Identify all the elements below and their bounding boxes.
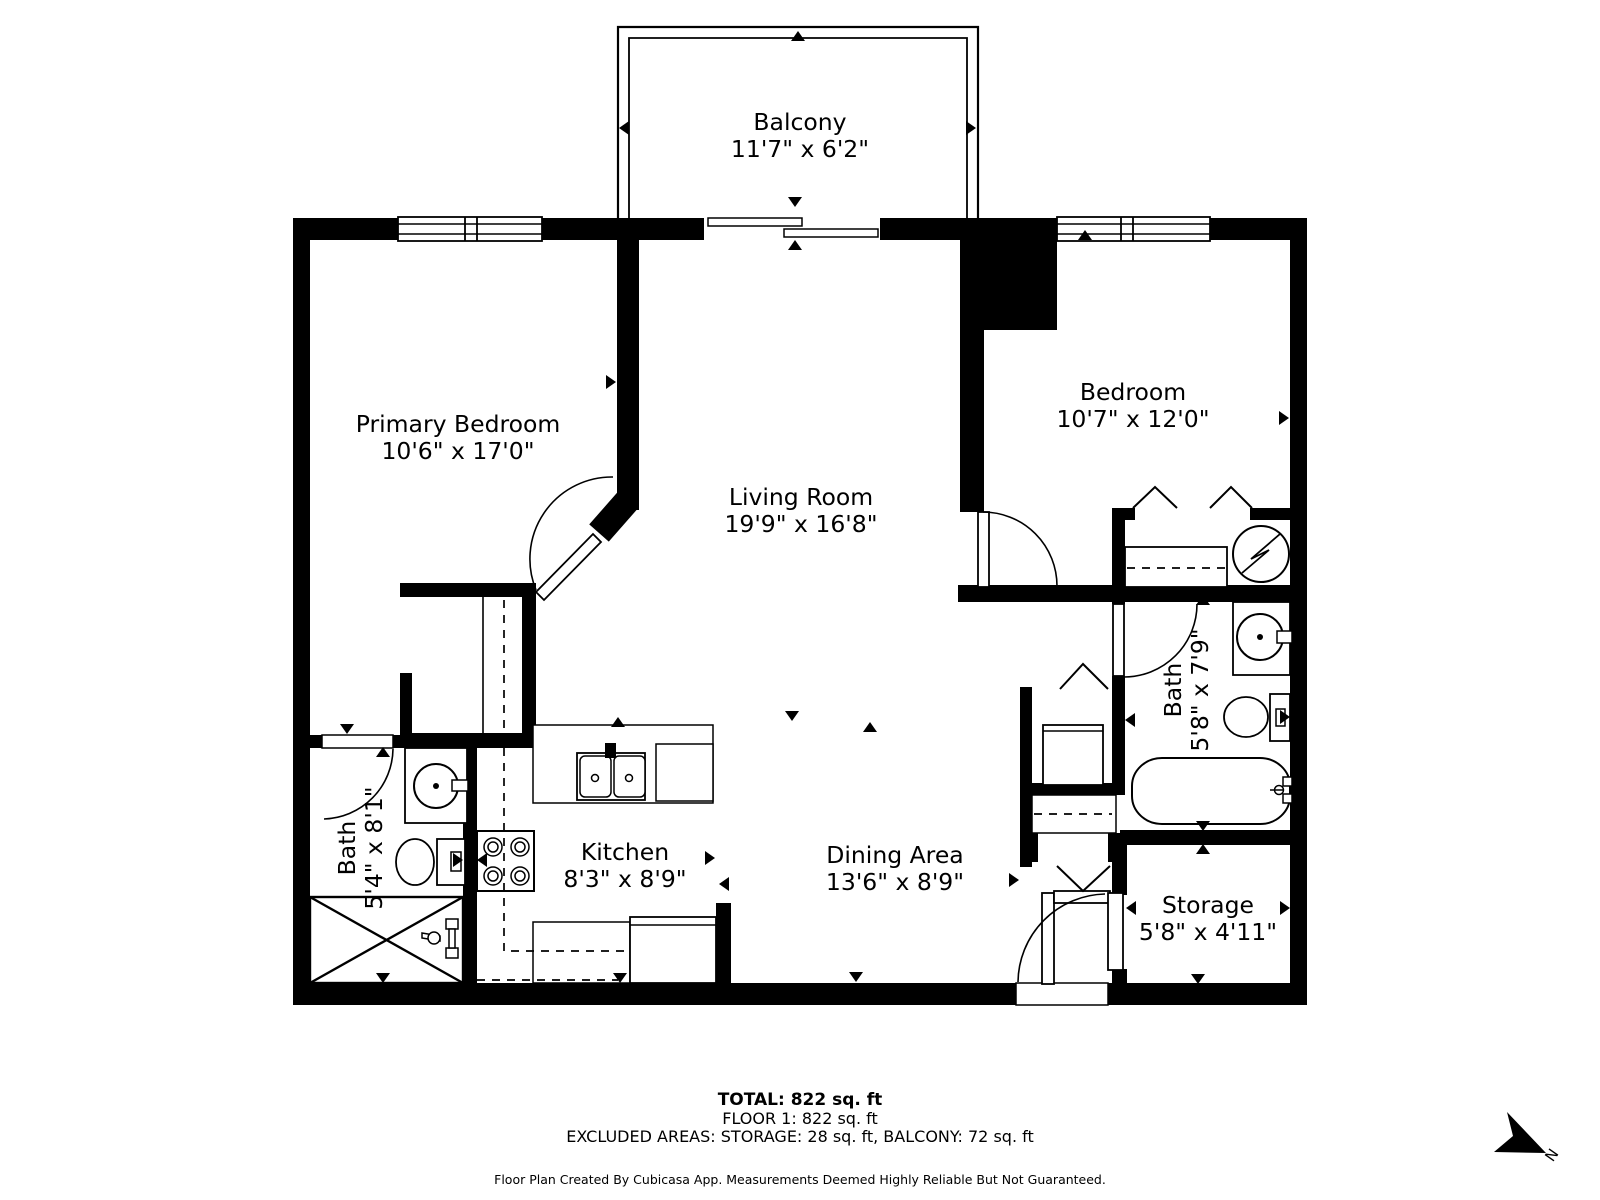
room-label-primary-bedroom-name: Primary Bedroom <box>356 410 561 438</box>
hall-closets <box>1032 725 1116 833</box>
room-label-living-room-dims: 19'9" x 16'8" <box>724 510 877 538</box>
bathtub-icon <box>1132 758 1292 824</box>
room-label-primary-bedroom-dims: 10'6" x 17'0" <box>381 437 534 465</box>
room-label-kitchen-dims: 8'3" x 8'9" <box>563 865 686 893</box>
summary-floor: FLOOR 1: 822 sq. ft <box>722 1109 878 1128</box>
room-kitchen-fixtures <box>477 597 716 983</box>
floor-plan-canvas: Balcony 11'7" x 6'2" Primary Bedroom 10'… <box>0 0 1600 1200</box>
room-label-living-room-name: Living Room <box>729 483 873 511</box>
room-label-bath-second-dims: 5'4" x 8'1" <box>360 786 388 909</box>
sink-icon <box>1233 602 1292 675</box>
exterior-walls <box>293 218 1307 1005</box>
room-label-balcony-name: Balcony <box>753 108 846 136</box>
room-label-bath-second-name: Bath <box>333 821 361 876</box>
summary-total: TOTAL: 822 sq. ft <box>718 1090 883 1110</box>
room-label-dining-area-name: Dining Area <box>826 841 963 869</box>
door-entry <box>1018 891 1123 984</box>
door-bedroom <box>978 512 1057 587</box>
door-primary-bedroom <box>530 477 613 600</box>
window-icon <box>398 217 542 241</box>
room-label-dining-area-dims: 13'6" x 8'9" <box>826 868 964 896</box>
room-label-bath-main-dims: 5'8" x 7'9" <box>1186 628 1214 751</box>
bedroom-closet <box>1125 526 1289 587</box>
footer-disclaimer: Floor Plan Created By Cubicasa App. Meas… <box>494 1172 1106 1187</box>
room-label-balcony-dims: 11'7" x 6'2" <box>731 135 869 163</box>
north-label: N <box>1541 1145 1562 1165</box>
sliding-door-icon <box>704 217 880 241</box>
room-label-bedroom-name: Bedroom <box>1080 378 1186 406</box>
sink-icon <box>405 748 468 823</box>
room-label-storage-name: Storage <box>1162 891 1254 919</box>
entry-opening <box>1016 983 1108 1005</box>
north-arrow-icon: N <box>1494 1112 1562 1165</box>
room-label-storage-dims: 5'8" x 4'11" <box>1139 918 1277 946</box>
room-label-kitchen-name: Kitchen <box>581 838 669 866</box>
water-heater-icon <box>1233 526 1289 582</box>
room-label-bath-main-name: Bath <box>1159 663 1187 718</box>
room-label-bedroom-dims: 10'7" x 12'0" <box>1056 405 1209 433</box>
summary-excluded: EXCLUDED AREAS: STORAGE: 28 sq. ft, BALC… <box>566 1127 1033 1146</box>
